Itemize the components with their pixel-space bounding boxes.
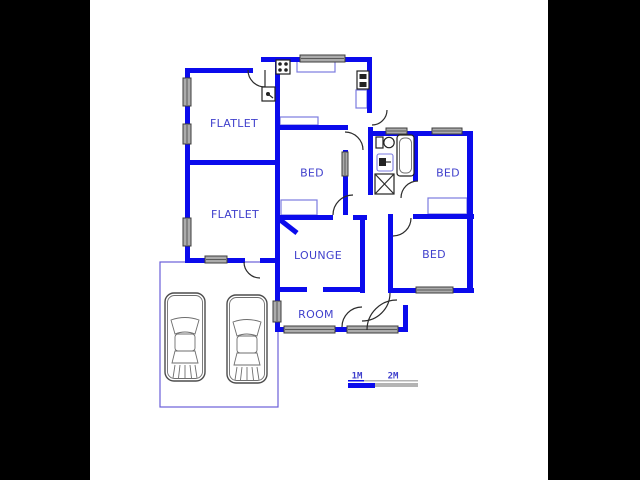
window-marker bbox=[432, 128, 462, 134]
window-marker bbox=[273, 301, 281, 322]
room-label-bed-middle: BED bbox=[300, 167, 324, 180]
wall-segment bbox=[185, 68, 253, 73]
car-icon bbox=[227, 295, 267, 383]
wall-segment bbox=[275, 287, 307, 292]
cupboard bbox=[280, 117, 318, 125]
car-icon bbox=[165, 293, 205, 381]
wall-segment bbox=[413, 214, 474, 219]
floor-plan-canvas: FLATLET FLATLET BED BED BED LOUNGE ROOM … bbox=[0, 0, 640, 480]
room-label-bed-top-right: BED bbox=[436, 167, 460, 180]
cupboard bbox=[281, 200, 317, 215]
kitchen-counter bbox=[297, 61, 335, 72]
room-label-flatlet-1: FLATLET bbox=[210, 117, 258, 130]
kitchen-counter bbox=[356, 90, 367, 108]
letterbox-right bbox=[548, 0, 640, 480]
window-marker bbox=[183, 124, 191, 144]
floor-plan-page: FLATLET FLATLET BED BED BED LOUNGE ROOM … bbox=[0, 0, 640, 480]
window-marker bbox=[183, 78, 191, 106]
scale-segment-2m bbox=[375, 383, 418, 387]
geyser-icon bbox=[262, 87, 275, 101]
wall-segment bbox=[467, 131, 473, 293]
room-label-lounge: LOUNGE bbox=[294, 249, 342, 262]
wall-segment bbox=[360, 215, 365, 293]
toilet-icon bbox=[376, 137, 394, 148]
window-marker bbox=[386, 128, 407, 134]
letterbox-left bbox=[0, 0, 90, 480]
window-marker bbox=[205, 256, 227, 263]
window-marker bbox=[183, 218, 191, 246]
wall-segment bbox=[323, 287, 365, 292]
wall-segment bbox=[368, 127, 373, 195]
window-marker bbox=[416, 287, 453, 293]
shower-icon bbox=[375, 174, 394, 194]
room-label-bed-bottom-right: BED bbox=[422, 248, 446, 261]
wall-segment bbox=[275, 125, 348, 130]
room-label-flatlet-2: FLATLET bbox=[211, 208, 259, 221]
scale-rule-blue bbox=[348, 380, 364, 382]
wall-segment bbox=[260, 258, 280, 263]
window-marker bbox=[342, 152, 348, 176]
window-marker bbox=[347, 326, 398, 333]
cupboard bbox=[428, 198, 467, 214]
wall-segment bbox=[388, 219, 393, 293]
wall-segment bbox=[403, 305, 408, 332]
room-label-room: ROOM bbox=[298, 308, 334, 321]
window-marker bbox=[300, 55, 345, 62]
window-marker bbox=[284, 326, 335, 333]
stove-icon bbox=[276, 60, 290, 74]
bathtub-icon bbox=[397, 135, 414, 176]
wall-segment bbox=[275, 215, 333, 220]
scale-segment-1m bbox=[348, 383, 375, 388]
wall-segment bbox=[388, 214, 393, 219]
oven-icon bbox=[357, 71, 369, 89]
wall-segment bbox=[185, 160, 280, 165]
